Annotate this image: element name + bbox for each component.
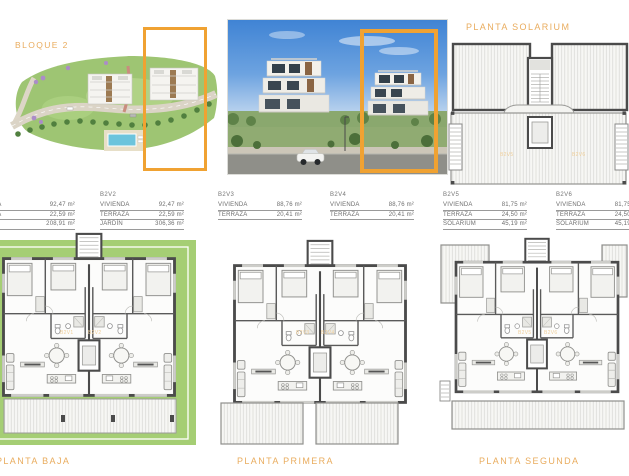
table-row: TERRAZA 24,50 m² [556, 211, 629, 221]
plan-sheet: BLOQUE 2 [0, 0, 629, 476]
table-row: JARDÍN 208,91 m² [0, 220, 75, 230]
row-value: 24,50 m² [615, 212, 629, 218]
row-value: 22,59 m² [159, 212, 184, 218]
row-value: 88,76 m² [389, 202, 414, 208]
unit-table-b2v4: B2V4 VIVIENDA 88,76 m² TERRAZA 20,41 m² [330, 192, 414, 220]
row-label: TERRAZA [100, 212, 129, 218]
unit-table-b2v1: B2V1 VIVIENDA 92,47 m² TERRAZA 22,59 m² … [0, 192, 75, 230]
side-stairs [440, 381, 450, 401]
plan-unit-label-b2v2: B2V2 [88, 330, 101, 336]
row-label: TERRAZA [443, 212, 472, 218]
solarium-title: PLANTA SOLARIUM [466, 22, 570, 32]
plan-title-primera: PLANTA PRIMERA [237, 456, 334, 466]
row-label: TERRAZA [330, 212, 359, 218]
row-label: VIVIENDA [100, 202, 130, 208]
unit-id: B2V5 [443, 192, 527, 198]
row-label: JARDÍN [100, 221, 123, 227]
solarium-unit-label-b2v5: B2V5 [500, 152, 513, 158]
pool [108, 134, 136, 146]
table-row: TERRAZA 22,59 m² [100, 211, 184, 221]
row-label: VIVIENDA [556, 202, 586, 208]
unit-table-b2v3: B2V3 VIVIENDA 88,76 m² TERRAZA 20,41 m² [218, 192, 302, 220]
row-value: 22,59 m² [50, 212, 75, 218]
table-row: VIVIENDA 88,76 m² [330, 201, 414, 211]
table-row: VIVIENDA 92,47 m² [100, 201, 184, 211]
row-label: VIVIENDA [330, 202, 360, 208]
unit-id: B2V2 [100, 192, 184, 198]
table-row: VIVIENDA 88,76 m² [218, 201, 302, 211]
aerial-building-left [88, 74, 132, 104]
row-value: 81,75 m² [502, 202, 527, 208]
car [130, 114, 136, 117]
row-value: 92,47 m² [159, 202, 184, 208]
row-label: VIVIENDA [218, 202, 248, 208]
plan-unit-label-b2v1: B2V1 [60, 330, 73, 336]
elevator [528, 117, 552, 148]
highlight-rect-photo [360, 29, 438, 173]
plan-title-segunda: PLANTA SEGUNDA [479, 456, 579, 466]
row-value: 208,91 m² [46, 221, 75, 227]
unit-table-b2v5: B2V5 VIVIENDA 81,75 m² TERRAZA 24,50 m² … [443, 192, 527, 230]
row-value: 306,36 m² [155, 221, 184, 227]
table-row: TERRAZA 20,41 m² [218, 211, 302, 221]
plan-unit-label-b2v4: B2V4 [321, 330, 334, 336]
row-label: TERRAZA [0, 212, 1, 218]
plan-unit-label-b2v3: B2V3 [296, 330, 309, 336]
row-value: 24,50 m² [502, 212, 527, 218]
row-value: 20,41 m² [389, 212, 414, 218]
ground-deck [4, 399, 176, 433]
plan-title-baja: PLANTA BAJA [0, 456, 70, 466]
plan-unit-label-b2v5: B2V5 [518, 330, 531, 336]
row-label: SOLARIUM [443, 221, 476, 227]
table-row: TERRAZA 24,50 m² [443, 211, 527, 221]
unit-id: B2V1 [0, 192, 75, 198]
table-row: SOLARIUM 45,19 m² [443, 220, 527, 230]
row-value: 92,47 m² [50, 202, 75, 208]
row-label: VIVIENDA [0, 202, 2, 208]
table-row: VIVIENDA 81,75 m² [556, 201, 629, 211]
table-row: TERRAZA 22,59 m² [0, 211, 75, 221]
photo-building-left [259, 59, 329, 112]
terrace-bottom [452, 401, 624, 429]
row-label: TERRAZA [556, 212, 585, 218]
stairs [528, 58, 552, 106]
terrace-right [316, 403, 398, 444]
unit-table-b2v2: B2V2 VIVIENDA 92,47 m² TERRAZA 22,59 m² … [100, 192, 184, 230]
solarium-plan-drawing [448, 38, 629, 198]
terrace-left [221, 403, 303, 444]
row-value: 20,41 m² [277, 212, 302, 218]
row-value: 81,75 m² [615, 202, 629, 208]
unit-id: B2V4 [330, 192, 414, 198]
floor-plan-baja-drawing [0, 231, 198, 451]
row-label: TERRAZA [218, 212, 247, 218]
row-value: 88,76 m² [277, 202, 302, 208]
row-label: VIVIENDA [443, 202, 473, 208]
side-stairs-left [449, 124, 462, 170]
row-value: 45,19 m² [615, 221, 629, 227]
unit-id: B2V3 [218, 192, 302, 198]
table-row: JARDÍN 306,36 m² [100, 220, 184, 230]
highlight-rect-aerial [143, 27, 207, 171]
floor-plan-segunda-drawing [438, 231, 629, 451]
side-stairs-right [615, 124, 628, 170]
table-row: VIVIENDA 81,75 m² [443, 201, 527, 211]
solarium-unit-label-b2v6: B2V6 [572, 152, 585, 158]
unit-id: B2V6 [556, 192, 629, 198]
floor-plan-primera-drawing [213, 231, 418, 451]
row-value: 45,19 m² [502, 221, 527, 227]
car [67, 107, 73, 110]
plan-unit-label-b2v6: B2V6 [544, 330, 557, 336]
table-row: TERRAZA 20,41 m² [330, 211, 414, 221]
row-label: SOLARIUM [556, 221, 589, 227]
unit-table-b2v6: B2V6 VIVIENDA 81,75 m² TERRAZA 24,50 m² … [556, 192, 629, 230]
table-row: SOLARIUM 45,19 m² [556, 220, 629, 230]
table-row: VIVIENDA 92,47 m² [0, 201, 75, 211]
